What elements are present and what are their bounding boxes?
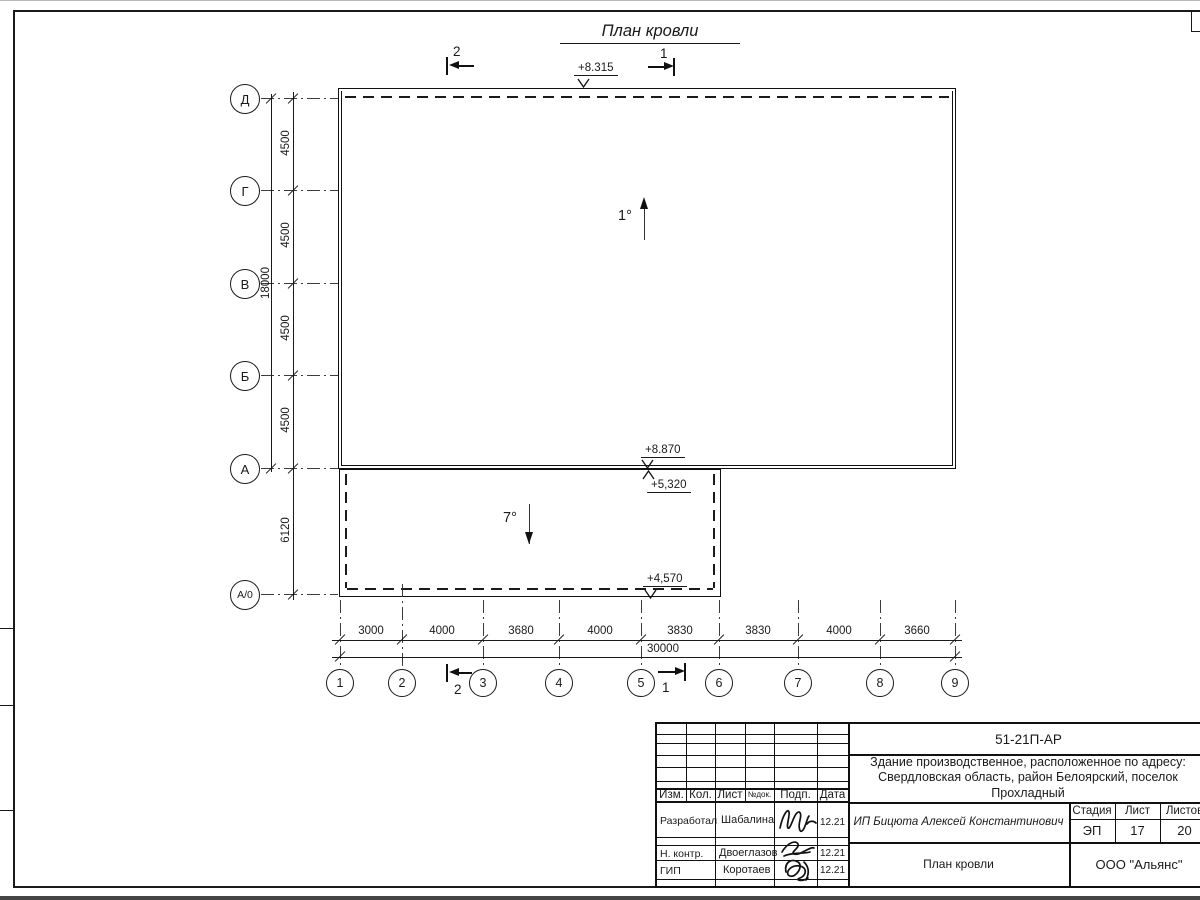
dim-label: 3680 [496, 625, 546, 637]
dim-line-col-total [332, 657, 962, 658]
tb-company: ООО "Альянс" [1069, 842, 1200, 886]
dim-label: 4000 [417, 625, 467, 637]
tb-col-date: Дата [817, 788, 848, 801]
tb-role-name: Двоеглазов [719, 847, 777, 859]
col-axis-bubble: 9 [941, 669, 969, 697]
corner-box-left [1191, 10, 1192, 32]
elevation-arrow-down-icon [641, 459, 654, 469]
dim-label: 4500 [280, 123, 292, 163]
section-1-line-bottom [658, 671, 676, 673]
scan-edge-bottom [0, 896, 1200, 900]
dim-label: 4500 [280, 308, 292, 348]
drawing-sheet: План кровли Д Г В Б А А/0 4500 4500 4500… [0, 0, 1200, 900]
main-roof-outline-inner [341, 91, 953, 466]
dim-label: 3830 [655, 625, 705, 637]
tb-client: ИП Бицюта Алексей Константинович [848, 802, 1069, 842]
frame-left [13, 10, 15, 888]
dim-label-total-vertical: 18000 [260, 253, 272, 313]
tb-role-date: 12.21 [820, 848, 845, 859]
axis-line-a [261, 468, 338, 469]
elevation-arrow-down-icon [644, 589, 657, 599]
axis-line-d [261, 98, 338, 99]
margin-cell-line [0, 628, 13, 629]
slope-arrow-down-icon [525, 532, 533, 544]
signature [776, 804, 818, 836]
col-axis-bubble: 5 [627, 669, 655, 697]
elevation-roof-top: +8.315 [574, 62, 618, 76]
section-2-label-top: 2 [453, 44, 461, 59]
frame-top [13, 10, 1200, 12]
axis-line-b [261, 375, 338, 376]
section-1-label-top: 1 [660, 46, 668, 61]
tb-sheet-name: План кровли [848, 842, 1069, 886]
section-2-line-top [458, 65, 474, 67]
tb-sheet-label: Лист [1115, 802, 1160, 819]
annex-wall-dashed-left [345, 474, 347, 588]
tb-description: Здание производственное, расположенное п… [853, 754, 1200, 802]
tb-role-name: Коротаев [723, 864, 771, 876]
tb-col-kol: Кол. [686, 788, 715, 801]
tb-col-izm: Изм. [657, 788, 686, 801]
slope-label-annex: 7° [503, 510, 517, 526]
dim-label-total-horizontal: 30000 [635, 643, 691, 655]
tb-sheet-value: 17 [1115, 819, 1160, 842]
tb-col-doc: №док. [745, 788, 774, 801]
row-axis-bubble: Д [230, 84, 260, 114]
col-axis-bubble: 1 [326, 669, 354, 697]
col-axis-bubble: 6 [705, 669, 733, 697]
col-axis-bubble: 2 [388, 669, 416, 697]
tb-stage-value: ЭП [1069, 819, 1115, 842]
tb-role: ГИП [660, 865, 681, 877]
signature [776, 838, 818, 884]
tb-role-date: 12.21 [820, 817, 845, 828]
margin-cell-line [0, 810, 13, 811]
col-axis-bubble: 4 [545, 669, 573, 697]
dim-label: 4500 [280, 400, 292, 440]
dim-label: 6120 [280, 510, 292, 550]
row-axis-bubble: В [230, 269, 260, 299]
tb-doc-number: 51-21П-АР [848, 724, 1200, 754]
section-2-line-bottom [458, 672, 472, 674]
dim-label: 4000 [814, 625, 864, 637]
tb-role: Разработал [660, 815, 717, 827]
corner-box-bottom [1191, 31, 1200, 32]
dim-line-col-segments [332, 640, 962, 641]
tb-role-date: 12.21 [820, 865, 845, 876]
annex-wall-dashed-right [713, 474, 715, 588]
tb-sheets-value: 20 [1160, 819, 1200, 842]
col-axis-line [402, 584, 403, 668]
title-block: Изм. Кол. Лист №док. Подп. Дата Разработ… [655, 722, 1200, 888]
axis-line-g [261, 190, 338, 191]
axis-line-a0 [261, 594, 338, 595]
row-axis-bubble: А [230, 454, 260, 484]
slope-arrow-up-icon [640, 197, 648, 209]
col-axis-bubble: 7 [784, 669, 812, 697]
row-axis-bubble: А/0 [230, 580, 260, 610]
section-2-label-bottom: 2 [454, 682, 462, 697]
section-1-bar-bottom [684, 663, 686, 681]
col-axis-bubble: 8 [866, 669, 894, 697]
dim-label: 3830 [733, 625, 783, 637]
elevation-arrow-down-icon [577, 78, 590, 88]
section-1-line-top [648, 66, 665, 68]
tb-col-sign: Подп. [774, 788, 817, 801]
dim-label: 3000 [346, 625, 396, 637]
tb-stage-label: Стадия [1069, 802, 1115, 819]
dim-label: 3660 [892, 625, 942, 637]
col-axis-bubble: 3 [469, 669, 497, 697]
scan-edge-top [0, 0, 1200, 1]
margin-cell-line [0, 705, 13, 706]
dim-line-row-segments [293, 92, 294, 600]
dim-label: 4500 [280, 215, 292, 255]
tb-sheets-label: Листов [1160, 802, 1200, 819]
tb-col-list: Лист [715, 788, 745, 801]
elevation-roof-main: +8.870 [641, 444, 685, 458]
main-wall-dashed-line [345, 96, 949, 98]
section-1-bar-top [673, 58, 675, 76]
dim-label: 4000 [575, 625, 625, 637]
slope-label-main: 1° [618, 208, 632, 224]
elevation-annex-high: +5,320 [647, 479, 691, 493]
axis-line-v [261, 283, 338, 284]
elevation-annex-low: +4,570 [643, 573, 687, 587]
drawing-title: План кровли [560, 22, 740, 44]
tb-role: Н. контр. [660, 848, 703, 860]
row-axis-bubble: Г [230, 176, 260, 206]
tb-role-name: Шабалина [721, 814, 774, 826]
section-1-label-bottom: 1 [662, 680, 670, 695]
row-axis-bubble: Б [230, 361, 260, 391]
